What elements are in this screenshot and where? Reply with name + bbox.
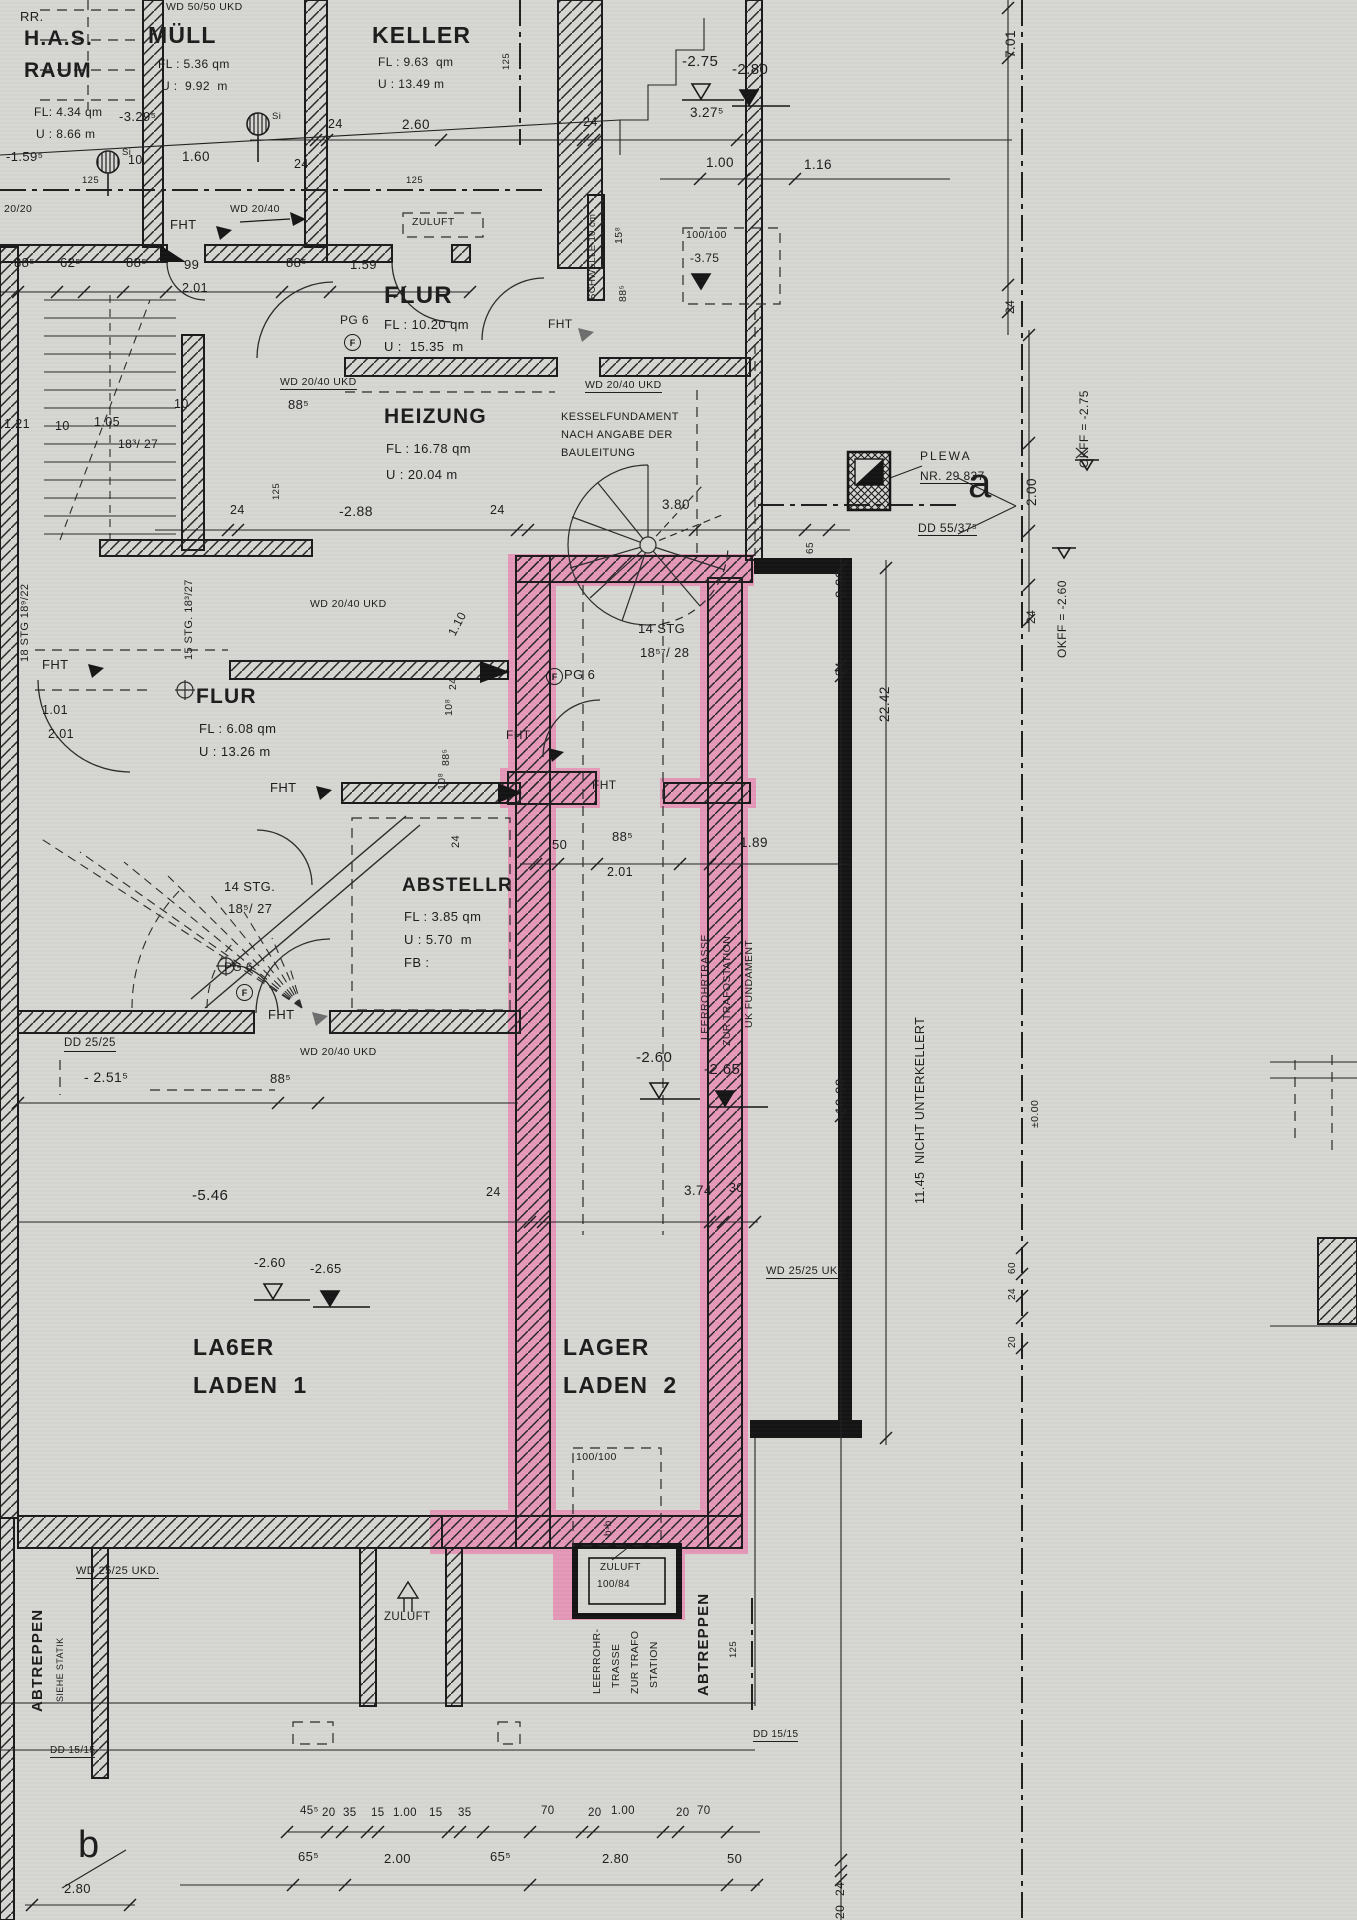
room-flur-top-title: FLUR (384, 284, 453, 308)
dim-label: 24 (448, 678, 459, 690)
level-label: - 2.51⁵ (84, 1070, 128, 1084)
room-heizung-perimeter: U : 20.04 m (386, 468, 458, 481)
note-si: Si (272, 112, 281, 122)
dim-label: 24 (490, 504, 505, 517)
dim-label: 24 (486, 1186, 501, 1199)
room-abstell-fb: FB : (404, 956, 429, 969)
room-has-title1: H.A.S. (24, 28, 93, 49)
circle-f-icon: F (236, 984, 253, 1001)
note-zuluft-box: ZULUFT (600, 1563, 641, 1573)
axis-marker-a: a (968, 462, 993, 504)
room-flur-perimeter: U : 13.26 m (199, 745, 271, 758)
room-heizung-area: FL : 16.78 qm (386, 442, 471, 455)
room-keller-perimeter: U : 13.49 m (378, 78, 444, 90)
dim-label: 88⁵ (286, 256, 307, 269)
level-label: -2.75 (682, 54, 718, 69)
dim-label: 24 (834, 662, 846, 676)
dim-label: 1.89 (740, 836, 768, 850)
dim-label: 24 (1008, 1288, 1018, 1300)
note-wd2040: WD 20/40 (230, 204, 280, 215)
note-schwelle: SCHWELLE 10 cm (588, 214, 598, 300)
note-leerrohr3: UK FUNDAMENT (744, 940, 755, 1028)
dim-label: 10 (174, 398, 189, 411)
dim-label: 24 (230, 504, 245, 517)
room-has-perimeter: U : 8.66 m (36, 128, 95, 140)
stair-run-lines (191, 816, 420, 1008)
dim-label: 88⁵ (126, 256, 147, 269)
dim-label: 2.20 (834, 570, 848, 598)
dim-label: 2.60 (402, 118, 430, 132)
note-kessel3: BAULEITUNG (561, 448, 635, 459)
dim-label: 35 (343, 1808, 357, 1820)
dim-label: 24 (1025, 610, 1037, 624)
floor-plan-sheet: H.A.S. RAUM FL: 4.34 qm U : 8.66 m MÜLL … (0, 0, 1357, 1920)
note-rr: RR. (20, 10, 44, 23)
dim-label: 88⁵ (618, 285, 629, 302)
room-keller-title: KELLER (372, 24, 471, 47)
level-label: -2.88 (339, 504, 373, 518)
note-okff260: OKFF = -2.60 (1056, 580, 1068, 658)
dim-label: 88⁵ (14, 256, 35, 269)
note-dd2525: DD 25/25 (64, 1038, 116, 1052)
dim-label: 1.16 (804, 158, 832, 172)
dim-label: 88⁵ (288, 398, 309, 411)
dim-label: 1.01 (42, 704, 68, 717)
note-dd5537: DD 55/37⁵ (918, 522, 977, 536)
dim-label: 10 (55, 420, 70, 433)
note-wd2040ukd: WD 20/40 UKD (310, 599, 387, 610)
note-abtreppen-left: ABTREPPEN (30, 1609, 45, 1712)
dim-label: 1.21 (4, 418, 30, 431)
dim-label: 45⁵ (300, 1806, 319, 1818)
dim-label: 70 (541, 1806, 555, 1818)
room-abstell-perimeter: U : 5.70 m (404, 933, 472, 946)
note-nicht-unterkellert: 11.45 NICHT UNTERKELLERT (914, 1017, 927, 1204)
dim-label: 10.00 (834, 1078, 848, 1114)
dim-label: 30 (729, 1182, 744, 1195)
dim-label: 2.01 (607, 866, 633, 879)
dim-label: 24 (294, 158, 309, 171)
room-has-area: FL: 4.34 qm (34, 106, 102, 118)
dim-label: 125 (729, 1641, 739, 1658)
room-abstell-title: ABSTELLR (402, 876, 513, 895)
level-label: -2.60 (254, 1256, 286, 1269)
dim-label: 2.01 (48, 728, 74, 741)
dim-label: 2.00 (1025, 478, 1039, 506)
note-wd2525ukd: WD 25/25 UKD (766, 1266, 846, 1279)
note-wd2040ukd: WD 20/40 UKD (300, 1047, 377, 1058)
dim-label: 24 (834, 1882, 846, 1896)
note-wd5050: WD 50/50 UKD (166, 2, 243, 13)
room-keller-area: FL : 9.63 qm (378, 56, 453, 68)
stair15-label: 15 STG. 18³/27 (184, 579, 195, 660)
dim-label: 70 (697, 1806, 711, 1818)
note-100100-top: 100/100 (686, 230, 727, 241)
plewa-chimney-icon (848, 452, 890, 510)
note-leerrohr-b1: LEERROHR- (592, 1629, 603, 1694)
dim-label: 15⁸ (614, 227, 625, 244)
dim-label: 2.01 (182, 282, 208, 295)
dim-label: 20 (588, 1808, 602, 1820)
note-fht: FHT (506, 729, 531, 741)
room-lager2-title1: LAGER (563, 1336, 650, 1359)
dim-label: 1.05 (94, 416, 120, 429)
dim-label: 20/20 (4, 204, 32, 215)
room-heizung-title: HEIZUNG (384, 406, 487, 427)
room-flur-area: FL : 6.08 qm (199, 722, 276, 735)
dim-label: 2.80 (602, 1852, 629, 1865)
spiral-stair-label2: 18⁵⁷/ 28 (640, 646, 689, 659)
level-label: -2.65 (704, 1062, 740, 1077)
room-flur-top-area: FL : 10.20 qm (384, 318, 469, 331)
dim-label: 35 (458, 1808, 472, 1820)
dim-label: 88⁵ (612, 830, 633, 843)
room-muell-perimeter: U : 9.92 m (161, 80, 228, 92)
dim-label: 1.60 (182, 150, 210, 164)
dim-label: 65⁵ (490, 1850, 511, 1863)
note-fht: FHT (170, 218, 196, 231)
circle-f-icon: F (344, 334, 361, 351)
dim-label: 1.00 (611, 1806, 635, 1818)
level-label: -2.80 (732, 62, 768, 77)
note-zuluft: ZULUFT (412, 217, 455, 228)
dim-label: 50 (552, 838, 567, 851)
dim-label: 125 (406, 176, 423, 186)
dim-label: 20 (1008, 1336, 1018, 1348)
dim-label: 3.80 (662, 498, 690, 512)
winder-stair-label1: 14 STG. (224, 880, 275, 893)
level-label: -2.60 (636, 1050, 672, 1065)
zuluft-arrow-icon (398, 1582, 418, 1612)
dim-label: 60 (1008, 1262, 1018, 1274)
room-lager1-title1: LA6ER (193, 1336, 274, 1359)
level-label: -2.65 (310, 1262, 342, 1275)
dim-label: 65⁵ (298, 1850, 319, 1863)
note-fht: FHT (270, 781, 296, 794)
level-label: -5.46 (192, 1188, 228, 1203)
note-okff275: OKFF = -2.75 (1078, 390, 1090, 468)
room-muell-area: FL : 5.36 qm (158, 58, 230, 70)
spiral-stair-label1: 14 STG (638, 622, 685, 635)
note-wd2040ukd: WD 20/40 UKD (280, 377, 357, 390)
note-wd2040ukd: WD 20/40 UKD (585, 380, 662, 393)
note-zuluft-size: 100/84 (597, 1580, 630, 1590)
dim-label: 7.01 (1004, 30, 1018, 58)
note-section-bb: b-b (604, 1520, 614, 1536)
winder-stair-dashed (40, 838, 302, 1008)
note-fht: FHT (592, 779, 617, 791)
note-plewa1: PLEWA (920, 450, 972, 462)
dim-label: 65 (806, 542, 816, 554)
note-fht: FHT (268, 1008, 294, 1021)
note-pg6: PG 6 (224, 961, 253, 973)
winder-stair-label2: 18⁵/ 27 (228, 902, 272, 915)
dim-label: 1.00 (706, 156, 734, 170)
dim-label: 15 (429, 1808, 443, 1820)
dim-label: 22.42 (878, 686, 892, 722)
dim-label: 88⁵ (270, 1072, 291, 1085)
dim-label: 15 (371, 1808, 385, 1820)
room-abstell-area: FL : 3.85 qm (404, 910, 481, 923)
note-kessel2: NACH ANGABE DER (561, 430, 673, 441)
note-leerrohr-b3: ZUR TRAFO (630, 1631, 641, 1695)
note-fht: FHT (548, 318, 573, 330)
dim-label: 10⁸ (444, 699, 455, 716)
room-flur-top-perimeter: U : 15.35 m (384, 340, 464, 353)
room-lager2-title2: LADEN 2 (563, 1374, 677, 1397)
dim-label: 99 (184, 258, 199, 271)
note-fht: FHT (42, 658, 68, 671)
stair-ratio-label: 18³/ 27 (118, 438, 158, 450)
dim-label: 2.00 (384, 1852, 411, 1865)
level-label: -3.29⁵ (119, 110, 156, 123)
dim-label: 88⁵ (441, 749, 452, 766)
dim-label: 125 (272, 483, 282, 500)
dim-label: 24 (328, 118, 343, 131)
dim-label: 10 (128, 154, 143, 167)
dim-label: 24 (451, 835, 462, 848)
room-flur-title: FLUR (196, 686, 257, 707)
dim-label: 125 (502, 53, 512, 70)
dim-label: 20 (322, 1808, 336, 1820)
note-leerrohr-b4: STATION (649, 1641, 660, 1688)
note-dd1515: DD 15/15 (50, 1746, 95, 1758)
note-abtreppen-right: ABTREPPEN (696, 1593, 711, 1696)
dim-label: 1.59 (350, 258, 377, 271)
level-label: -1.59⁵ (6, 150, 43, 163)
room-muell-title: MÜLL (148, 24, 217, 47)
note-wd2525ukd: WD 25/25 UKD. (76, 1566, 159, 1579)
dim-label: 3.74 (684, 1184, 712, 1198)
note-leerrohr-b2: TRASSE (611, 1644, 622, 1688)
stair18-label: 18 STG 18⁹/22 (20, 584, 31, 662)
circle-f-icon: F (546, 668, 563, 685)
dim-label: 24 (1004, 300, 1016, 314)
note-100100-lager2: 100/100 (576, 1452, 617, 1463)
note-kessel1: KESSELFUNDAMENT (561, 412, 679, 423)
dim-label: 3.27⁵ (690, 106, 724, 120)
dim-label: 20 (834, 1905, 846, 1919)
level-label: ±0.00 (1030, 1100, 1041, 1128)
dim-label: 24 (583, 116, 598, 129)
dim-label: 2.80 (64, 1882, 91, 1895)
note-dd1515: DD 15/15 (753, 1730, 798, 1742)
dim-label: 10⁸ (437, 773, 448, 790)
dim-label: 1.00 (393, 1808, 417, 1820)
note-zuluft-lager1: ZULUFT (384, 1612, 430, 1624)
level-symbols (254, 84, 1099, 1307)
pg6-label: PG 6 (340, 314, 369, 326)
note-leerrohr1: LEERROHRTRASSE (700, 934, 711, 1040)
axis-marker-b: b (78, 1826, 100, 1864)
room-has-title2: RAUM (24, 60, 92, 81)
note-siehe-statik: SIEHE STATIK (56, 1638, 65, 1702)
dim-label: 62⁵ (60, 256, 81, 269)
dim-label: 125 (82, 176, 99, 186)
room-lager1-title2: LADEN 1 (193, 1374, 307, 1397)
note-pg6: PG 6 (564, 668, 595, 681)
note-leerrohr2: ZUR TRAFOSTATION (722, 936, 733, 1046)
level-label: -3.75 (690, 252, 719, 264)
dim-label: 20 (676, 1808, 690, 1820)
dim-label: 50 (727, 1852, 742, 1865)
